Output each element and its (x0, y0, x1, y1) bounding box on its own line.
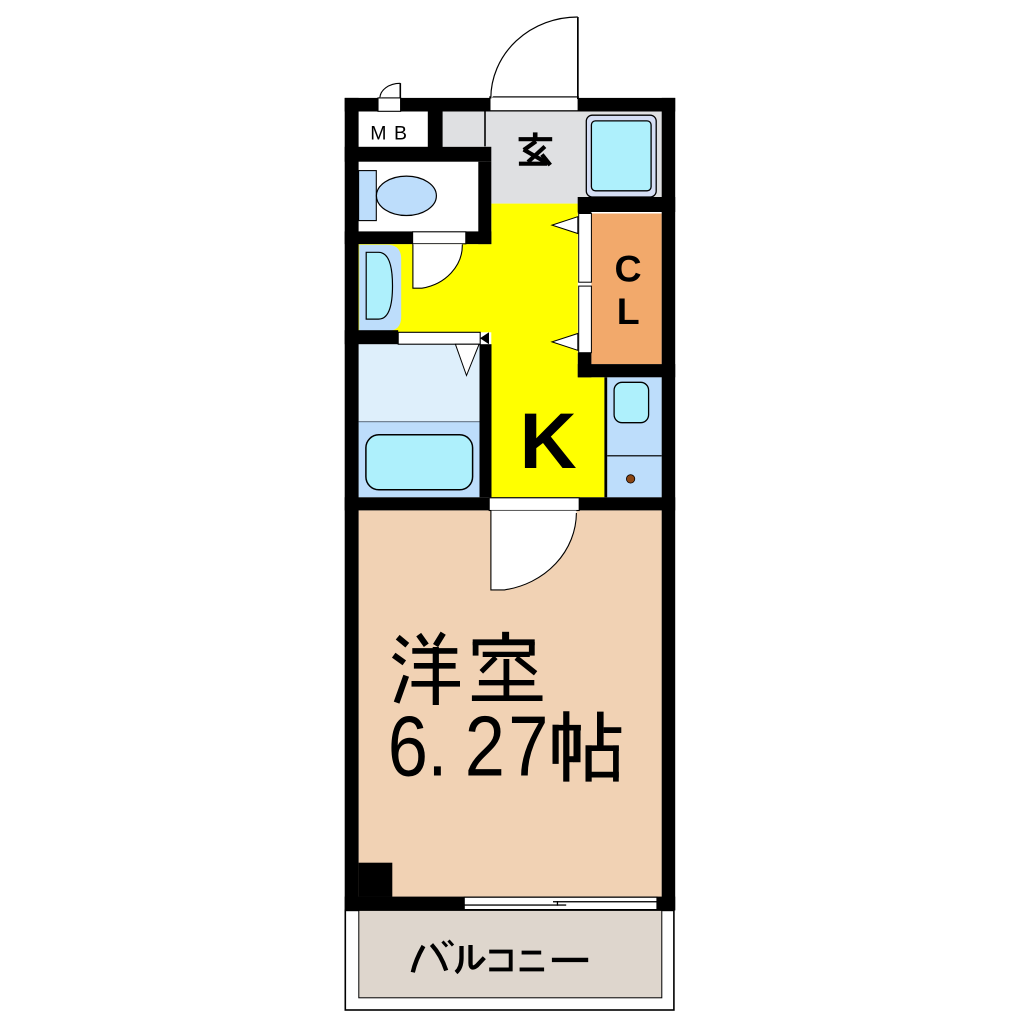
svg-text:2: 2 (465, 699, 505, 794)
svg-text:L: L (617, 290, 640, 332)
svg-text:K: K (520, 396, 577, 485)
svg-text:C: C (615, 248, 642, 290)
svg-text:7: 7 (508, 699, 548, 794)
svg-text:6: 6 (388, 699, 428, 794)
svg-text:.: . (427, 699, 447, 794)
